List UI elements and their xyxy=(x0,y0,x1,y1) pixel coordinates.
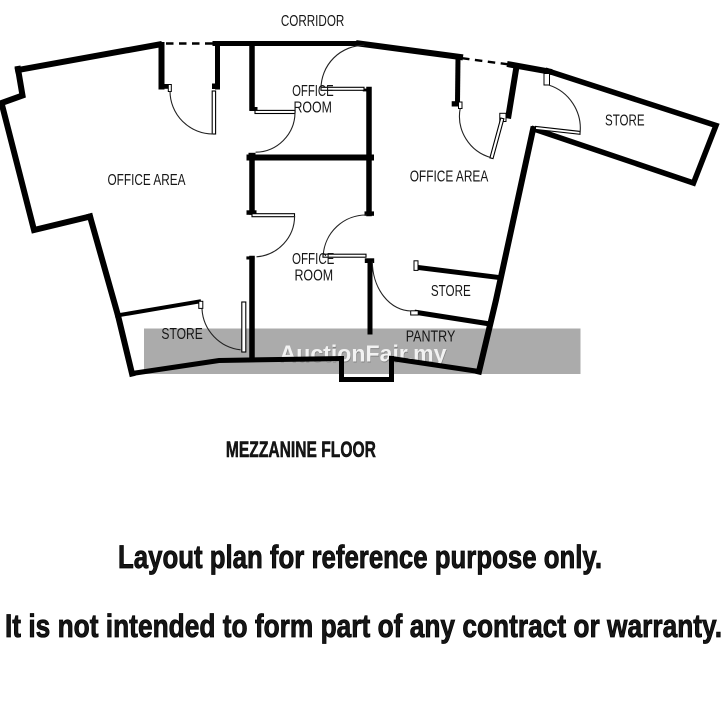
svg-text:STORE: STORE xyxy=(161,326,202,343)
svg-text:CORRIDOR: CORRIDOR xyxy=(281,13,345,30)
svg-text:OFFICE AREA: OFFICE AREA xyxy=(410,169,489,186)
svg-text:ROOM: ROOM xyxy=(294,267,333,284)
svg-text:OFFICE: OFFICE xyxy=(292,251,334,268)
svg-text:OFFICE: OFFICE xyxy=(292,83,334,100)
svg-text:It is not intended to form par: It is not intended to form part of any c… xyxy=(5,608,722,644)
svg-text:OFFICE AREA: OFFICE AREA xyxy=(108,172,186,189)
svg-text:PANTRY: PANTRY xyxy=(406,328,456,345)
svg-text:STORE: STORE xyxy=(605,112,645,129)
svg-text:Layout plan for reference purp: Layout plan for reference purpose only. xyxy=(118,539,602,575)
svg-text:MEZZANINE FLOOR: MEZZANINE FLOOR xyxy=(226,437,376,462)
svg-text:ROOM: ROOM xyxy=(294,99,332,116)
svg-text:STORE: STORE xyxy=(431,283,471,300)
